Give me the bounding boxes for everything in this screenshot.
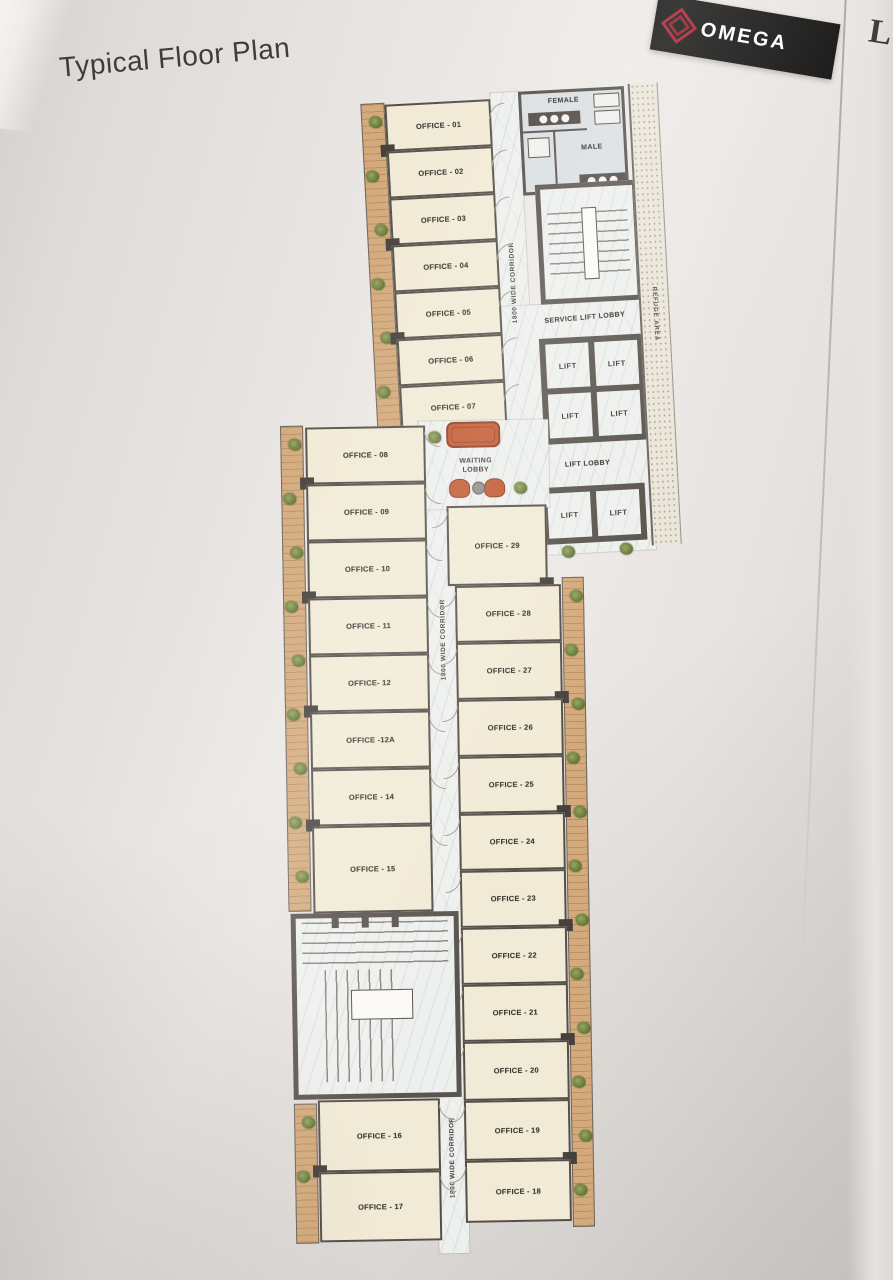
office-room-27: OFFICE - 27: [456, 641, 563, 700]
office-room-12A: OFFICE -12A: [310, 710, 431, 769]
office-room-09: OFFICE - 09: [306, 482, 427, 541]
office-label: OFFICE - 23: [491, 894, 536, 904]
office-room-03: OFFICE - 03: [389, 193, 497, 245]
office-room-06: OFFICE - 06: [397, 334, 505, 386]
office-room-19: OFFICE - 19: [464, 1099, 571, 1161]
office-label: OFFICE - 27: [487, 666, 532, 676]
office-label: OFFICE - 11: [346, 621, 391, 631]
office-label: OFFICE - 07: [430, 401, 476, 412]
refuge-area-label: REFUGE AREA: [651, 286, 660, 341]
office-label: OFFICE - 06: [428, 354, 474, 365]
office-room-15: OFFICE - 15: [312, 824, 434, 913]
sofa: [446, 421, 500, 448]
office-label: OFFICE - 16: [357, 1130, 402, 1140]
plant: [292, 655, 305, 667]
office-room-22: OFFICE - 22: [461, 926, 568, 985]
plant: [283, 493, 296, 505]
office-room-17: OFFICE - 17: [319, 1170, 442, 1242]
adjacent-page-letter: L: [866, 12, 893, 53]
office-room-16: OFFICE - 16: [318, 1098, 441, 1172]
waiting-lobby-label: WAITING LOBBY: [439, 456, 513, 475]
office-label: OFFICE - 22: [492, 951, 537, 961]
male-toilet-label: MALE: [564, 142, 620, 152]
office-room-01: OFFICE - 01: [384, 99, 492, 151]
brand-name: OMEGA: [698, 18, 790, 55]
office-label: OFFICE - 17: [358, 1201, 403, 1211]
omega-logo-icon: [661, 8, 697, 44]
lift-shaft: LIFT: [545, 342, 590, 388]
office-label: OFFICE- 12: [348, 678, 391, 688]
plant: [574, 1184, 587, 1196]
office-room-26: OFFICE - 26: [457, 698, 564, 757]
office-label: OFFICE - 29: [474, 540, 519, 550]
plant: [569, 860, 582, 872]
office-label: OFFICE - 26: [488, 723, 533, 733]
plant: [371, 278, 385, 291]
plant: [366, 170, 380, 183]
office-label: OFFICE - 28: [486, 609, 531, 619]
office-label: OFFICE - 05: [426, 307, 472, 318]
floor-plan: 1800 WIDE CORRIDOR OFFICE - 01OFFICE - 0…: [276, 84, 706, 1269]
office-label: OFFICE -12A: [346, 735, 395, 745]
plant: [567, 752, 580, 764]
plant: [620, 542, 634, 555]
office-label: OFFICE - 04: [423, 261, 469, 272]
armchair: [449, 479, 470, 498]
page-title: Typical Floor Plan: [58, 32, 291, 84]
stair-landing: [351, 989, 414, 1020]
plant: [285, 601, 298, 613]
office-room-18: OFFICE - 18: [465, 1159, 572, 1223]
plant: [289, 817, 302, 829]
office-label: OFFICE - 09: [344, 507, 389, 517]
office-room-24: OFFICE - 24: [459, 812, 566, 871]
office-label: OFFICE - 15: [350, 864, 395, 874]
office-label: OFFICE - 24: [490, 837, 535, 847]
plant: [369, 116, 383, 129]
plant: [302, 1116, 315, 1128]
plant: [296, 871, 309, 883]
adjacent-page-edge: [847, 0, 893, 1280]
office-room-25: OFFICE - 25: [458, 755, 565, 814]
office-room-23: OFFICE - 23: [460, 869, 567, 928]
female-toilet-label: FEMALE: [533, 96, 593, 106]
staircase-upper: [535, 180, 643, 305]
plant: [572, 698, 585, 710]
office-room-02: OFFICE - 02: [387, 146, 495, 198]
office-label: OFFICE - 20: [494, 1066, 539, 1076]
office-room-04: OFFICE - 04: [392, 240, 500, 292]
toilet-stall: [527, 137, 550, 158]
office-room-20: OFFICE - 20: [463, 1040, 570, 1101]
office-room-14: OFFICE - 14: [311, 767, 432, 826]
toilets-block: FEMALE MALE: [518, 86, 629, 195]
lower-wing: 1800 WIDE CORRIDOR 1800 WIDE CORRIDOR OF…: [280, 418, 617, 1257]
page-edge-line: [800, 0, 847, 991]
lift-shaft: LIFT: [597, 390, 642, 436]
plant: [288, 439, 301, 451]
plant: [377, 386, 391, 399]
plant: [576, 914, 589, 926]
plant: [375, 224, 389, 237]
plant: [574, 806, 587, 818]
plant: [287, 709, 300, 721]
plant: [290, 547, 303, 559]
office-room-29: OFFICE - 29: [446, 504, 547, 586]
office-room-21: OFFICE - 21: [462, 983, 569, 1042]
office-room-05: OFFICE - 05: [394, 287, 502, 339]
office-room-28: OFFICE - 28: [455, 584, 562, 643]
plant: [572, 1076, 585, 1088]
office-label: OFFICE - 19: [495, 1125, 540, 1135]
plant: [294, 763, 307, 775]
office-label: OFFICE - 08: [343, 450, 388, 460]
office-room-12: OFFICE- 12: [309, 653, 430, 712]
plant: [571, 968, 584, 980]
plant: [579, 1130, 592, 1142]
wash-basins: [528, 111, 581, 127]
plant: [428, 431, 441, 443]
plant: [565, 644, 578, 656]
toilet-stall: [594, 109, 621, 124]
office-label: OFFICE - 03: [421, 214, 467, 225]
plant: [297, 1171, 310, 1183]
office-label: OFFICE - 14: [349, 792, 394, 802]
staircase-lower: [291, 911, 462, 1100]
office-label: OFFICE - 02: [418, 167, 464, 178]
plant: [577, 1022, 590, 1034]
office-label: OFFICE - 18: [496, 1186, 541, 1196]
office-room-08: OFFICE - 08: [305, 425, 426, 484]
office-label: OFFICE - 21: [493, 1008, 538, 1018]
office-room-10: OFFICE - 10: [307, 539, 428, 598]
office-label: OFFICE - 25: [489, 780, 534, 790]
omega-logo-banner: OMEGA: [650, 0, 841, 80]
plant: [514, 482, 527, 494]
toilet-stall: [593, 92, 620, 107]
office-label: OFFICE - 10: [345, 564, 390, 574]
brochure-page: L Typical Floor Plan OMEGA 1800 WIDE COR…: [0, 0, 893, 1280]
plant: [570, 590, 583, 602]
office-label: OFFICE - 01: [416, 120, 462, 131]
lift-shaft: LIFT: [594, 340, 639, 386]
office-room-11: OFFICE - 11: [308, 596, 429, 655]
armchair: [484, 478, 505, 497]
